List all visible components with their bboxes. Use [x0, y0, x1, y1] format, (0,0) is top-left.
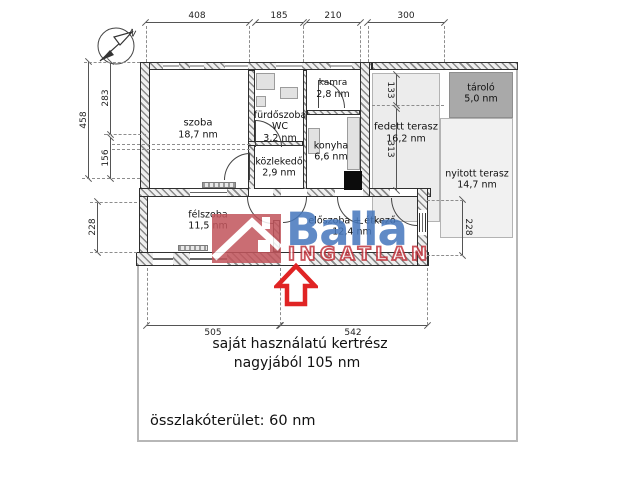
window-top-3 — [225, 62, 248, 70]
door-gap-hall — [281, 189, 307, 196]
room-area: 6,6 nm — [314, 152, 348, 163]
door-gap-kitchen — [335, 189, 363, 196]
ext-left-2 — [104, 134, 146, 135]
radiator-felszoba — [178, 245, 208, 251]
wall-top-terrace — [372, 62, 518, 70]
dim-label-228-left: 228 — [88, 218, 98, 235]
room-name: fürdőszoba — [254, 110, 307, 121]
dim-line-top-300 — [368, 22, 444, 23]
watermark-house-icon — [212, 214, 281, 263]
ext-right-2 — [427, 255, 463, 256]
ext-top-2 — [249, 26, 250, 62]
boundary-right — [516, 62, 518, 442]
room-name: tároló — [467, 83, 495, 94]
room-label-fedett-terasz: fedett terasz 16,2 nm — [374, 121, 438, 144]
dim-line-top-210 — [307, 22, 360, 23]
dim-label-283: 283 — [101, 89, 111, 106]
ext-left-4 — [90, 202, 137, 203]
ext-top-3 — [303, 26, 304, 62]
ext-bottom-1 — [147, 268, 148, 325]
dim-label-300: 300 — [397, 11, 414, 21]
room-label-nyitott-terasz: nyitott terasz 14,7 nm — [445, 169, 509, 192]
room-name: kamra — [319, 78, 348, 88]
ext-left-1 — [84, 62, 140, 63]
dim-line-top-185 — [256, 22, 303, 23]
section-line-1 — [112, 144, 250, 145]
watermark-logo-box — [212, 214, 281, 263]
room-label-konyha: konyha 6,6 nm — [314, 141, 348, 164]
room-name: szoba — [183, 117, 212, 128]
wall-pantry-bottom — [307, 110, 360, 115]
kitchen-counter-right — [347, 117, 360, 170]
ext-bottom-3 — [427, 268, 428, 325]
dim-label-133: 133 — [385, 81, 395, 98]
room-label-kozlekedo: közlekedő 2,9 nm — [255, 157, 302, 180]
ext-top-4 — [360, 26, 361, 62]
boundary-bottom — [137, 440, 518, 442]
room-label-furdoszoba: fürdőszoba WC 3,2 nm — [254, 110, 307, 144]
ext-left-5 — [90, 252, 137, 253]
room-label-tarolo: tároló 5,0 nm — [464, 83, 497, 106]
window-middle-szoba — [190, 188, 227, 197]
boundary-left — [137, 266, 139, 442]
dim-line-bottom-542 — [280, 325, 427, 326]
ext-top-6 — [444, 26, 445, 62]
room-area: 2,8 nm — [316, 89, 349, 100]
section-line-2 — [112, 149, 250, 150]
entrance-arrow-icon — [274, 262, 318, 308]
door-gap-felszoba — [249, 189, 273, 196]
toilet-fixture — [280, 87, 298, 99]
radiator-szoba — [202, 182, 236, 188]
garden-note-line2: nagyjából 105 nm — [234, 355, 361, 371]
dim-label-408: 408 — [188, 11, 205, 21]
shower-fixture — [256, 73, 275, 90]
window-top-5 — [331, 62, 352, 70]
sink-fixture — [256, 96, 266, 107]
room-area: 16,2 nm — [374, 133, 438, 144]
door-gap-terrace — [390, 189, 417, 196]
window-top-4 — [276, 62, 302, 70]
ext-right-1 — [427, 200, 463, 201]
dim-label-210: 210 — [324, 11, 341, 21]
garden-note-line1: saját használatú kertrész — [212, 336, 387, 352]
room-name: nyitott terasz — [445, 169, 509, 180]
door-arc-szoba — [224, 153, 250, 180]
stove-block — [344, 171, 362, 190]
room-name: közlekedő — [255, 157, 302, 168]
room-label-kamra: kamra 2,8 nm — [316, 78, 349, 100]
total-area-note: összlakóterület: 60 nm — [150, 413, 316, 429]
dim-label-156: 156 — [101, 149, 111, 166]
room-area: 2,9 nm — [255, 168, 302, 179]
window-top-2 — [190, 62, 204, 70]
window-bottom-1 — [153, 252, 173, 266]
dim-line-bottom-505 — [147, 325, 280, 326]
dim-line-133 — [396, 75, 397, 105]
room-area: 3,2 nm — [254, 133, 307, 144]
room-area: 14,7 nm — [445, 180, 509, 191]
window-right-wall — [419, 213, 426, 232]
terrace-split-line — [372, 105, 444, 106]
ext-left-3 — [82, 178, 140, 179]
window-top-1 — [163, 62, 179, 70]
dim-label-458: 458 — [79, 111, 89, 128]
room-label-szoba: szoba 18,7 nm — [178, 117, 217, 140]
wall-left-upper — [140, 62, 150, 197]
ext-top-1 — [146, 26, 147, 62]
room-name: fedett terasz — [374, 121, 438, 132]
room-name-2: WC — [254, 121, 307, 132]
compass-north-label: N — [127, 28, 138, 40]
room-area: 5,0 nm — [464, 94, 497, 105]
room-name: konyha — [314, 141, 348, 152]
room-area: 18,7 nm — [178, 129, 217, 140]
dim-label-228-right: 228 — [463, 218, 473, 235]
ext-top-5 — [368, 26, 369, 62]
floorplan-canvas: N — [0, 0, 640, 480]
dim-line-top-408 — [146, 22, 249, 23]
dim-label-185: 185 — [270, 11, 287, 21]
